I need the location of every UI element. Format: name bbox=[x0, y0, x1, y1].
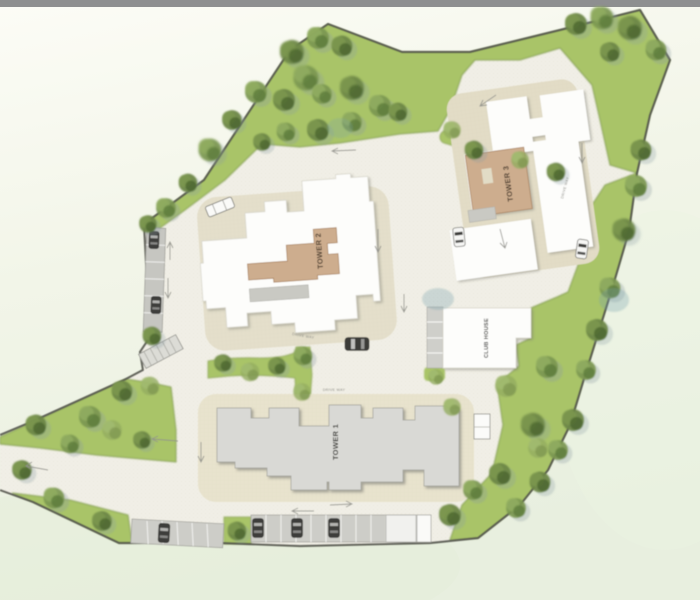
svg-text:DRIVE WAY: DRIVE WAY bbox=[323, 388, 346, 392]
svg-text:CLUB HOUSE: CLUB HOUSE bbox=[484, 318, 490, 358]
svg-text:TOWER 1: TOWER 1 bbox=[331, 424, 340, 460]
